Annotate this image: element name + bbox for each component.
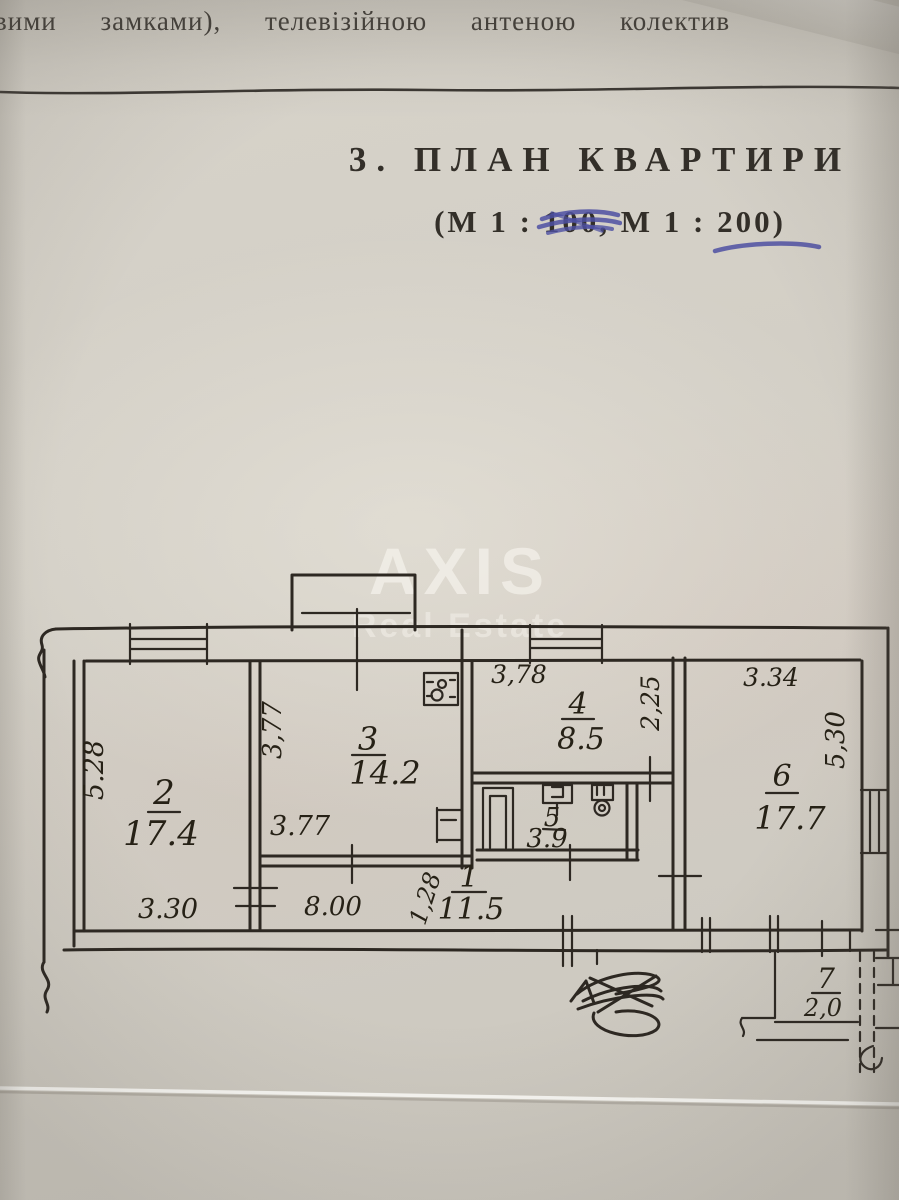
room-1-number: 1	[459, 860, 478, 895]
dim-room2-height: 5.28	[79, 740, 110, 800]
dim-room3-width: 3.77	[270, 811, 331, 842]
kitchen-sink-icon	[437, 808, 462, 842]
room-6-number: 6	[772, 759, 791, 794]
room-2-number: 2	[152, 773, 175, 813]
toilet-icon	[592, 785, 613, 816]
scribble-annotation	[571, 973, 663, 1035]
room-2-area: 17.4	[123, 814, 199, 854]
dim-room6-height: 5,30	[821, 711, 851, 769]
floor-plan-drawing: 2 17.4 3 14.2 4 8.5 5 3.9 6 17.7 1 11.5 …	[0, 0, 899, 1200]
dim-room3-height: 3,77	[258, 701, 288, 759]
window-room4	[530, 625, 602, 663]
window-room2	[130, 624, 207, 664]
room-3-area: 14.2	[349, 754, 420, 792]
room-4-number: 4	[567, 687, 587, 722]
scanned-floorplan-page: вими замками), телевізійною антеною коле…	[0, 0, 899, 1200]
dim-room6-width: 3.34	[743, 663, 799, 692]
room-4-area: 8.5	[557, 722, 605, 757]
room-3-number: 3	[358, 720, 378, 758]
vent-shaft-projection	[292, 575, 415, 690]
balcony-door-room6	[861, 790, 888, 853]
dim-hall-length: 8.00	[304, 892, 362, 922]
wall-break-symbol-bottom-left	[42, 962, 48, 1012]
room-1-area: 11.5	[438, 892, 505, 927]
paper-fold-crease	[0, 1088, 899, 1108]
room-7-number: 7	[817, 962, 835, 995]
dim-room4-width: 3,78	[491, 660, 547, 689]
bottom-wall-ticks	[563, 916, 850, 966]
stove-icon	[424, 673, 458, 705]
room-5-area: 3.9	[526, 824, 567, 854]
room-labels: 2 17.4 3 14.2 4 8.5 5 3.9 6 17.7 1 11.5 …	[123, 687, 842, 1022]
wall-break-symbol-top-left	[39, 629, 56, 677]
room-7-area: 2,0	[803, 994, 842, 1022]
pen-curl-mark	[860, 1046, 882, 1069]
room-6-area: 17.7	[754, 799, 826, 837]
dim-room4-height: 2,25	[636, 675, 665, 732]
dim-room2-width: 3.30	[138, 894, 198, 925]
bathtub-icon	[483, 788, 513, 848]
